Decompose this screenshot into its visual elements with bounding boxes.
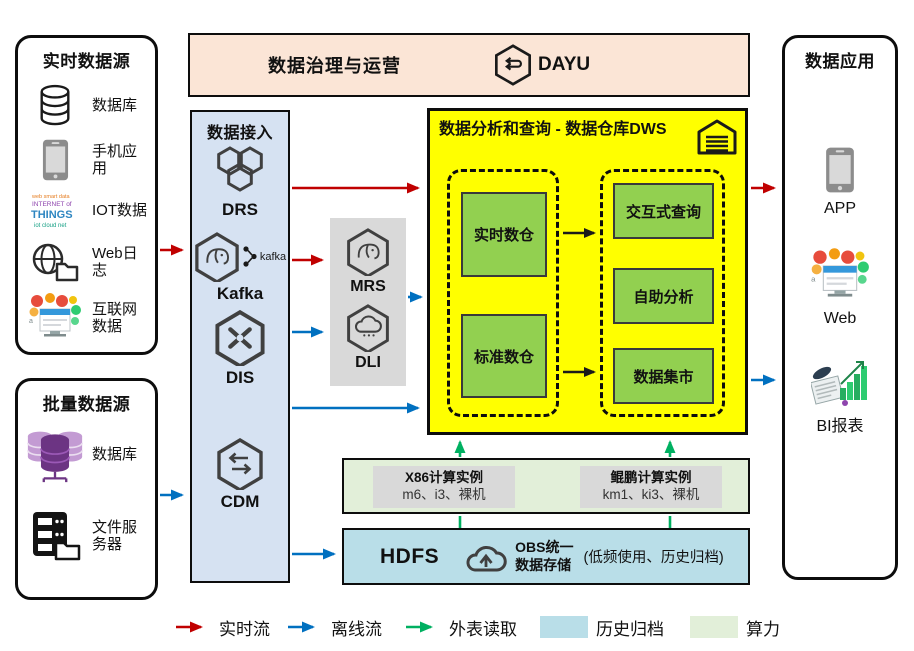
kafka-logo-text: kafka (260, 251, 286, 263)
iot-icon: web smart data INTERNET of THINGS iot cl… (26, 190, 84, 232)
batch-sources-box: 批量数据源 数据库 (15, 378, 158, 600)
source-label: 数据库 (92, 446, 137, 463)
legend-offline-arrow (287, 620, 323, 634)
kunpeng-instance-title: 鲲鹏计算实例 (611, 470, 692, 487)
storage-note: (低频使用、历史归档) (584, 546, 724, 567)
obs-label-line1: OBS统一 (515, 539, 573, 557)
governance-title: 数据治理与运营 (268, 52, 401, 78)
source-row-file-server: 文件服务器 (26, 501, 149, 571)
dayu-icon (493, 43, 533, 87)
ingestion-column: 数据接入 DRS (190, 110, 290, 583)
batch-sources-title: 批量数据源 (18, 390, 155, 415)
dayu-label: DAYU (538, 54, 590, 76)
x86-instance-specs: m6、i3、裸机 (402, 487, 485, 504)
web-icon: a (810, 248, 870, 304)
svg-text:a: a (29, 318, 33, 325)
internet-icon: a (26, 293, 84, 343)
compute-box: X86计算实例 m6、i3、裸机 鲲鹏计算实例 km1、ki3、裸机 (342, 458, 750, 514)
service-cdm: CDM (192, 438, 288, 512)
weblog-icon (26, 241, 84, 283)
dis-icon (213, 310, 267, 366)
legend-label: 离线流 (331, 615, 382, 640)
dli-icon (345, 304, 391, 352)
mrs-icon (345, 228, 391, 276)
legend-label: 历史归档 (596, 615, 664, 640)
svg-text:INTERNET of: INTERNET of (32, 201, 72, 208)
bi-icon (811, 358, 869, 406)
app-item-app: APP (785, 146, 895, 218)
legend-compute-swatch (690, 616, 738, 638)
source-label: 手机应用 (92, 143, 149, 178)
drs-label: DRS (222, 200, 258, 220)
app-label: APP (824, 200, 856, 218)
service-dis: DIS (192, 310, 288, 388)
warehouse-group: 实时数仓 标准数仓 (447, 169, 559, 417)
source-label: 数据库 (92, 97, 137, 114)
legend-realtime-arrow (175, 620, 211, 634)
x86-instance-title: X86计算实例 (405, 470, 483, 487)
realtime-sources-box: 实时数据源 数据库 手机应用 (15, 35, 158, 355)
dws-box: 数据分析和查询 - 数据仓库DWS 实时数仓 标准数仓 交互式查询 自助分析 数… (427, 108, 748, 435)
drs-icon (213, 144, 267, 198)
source-row-internet: a 互联网数据 (26, 290, 149, 346)
legend-external-arrow (405, 620, 441, 634)
svg-text:web smart data: web smart data (31, 194, 71, 200)
legend-archive: 历史归档 (540, 613, 664, 641)
legend-label: 外表读取 (449, 615, 517, 640)
ingestion-title: 数据接入 (192, 119, 288, 143)
source-row-batch-database: 数据库 (26, 419, 149, 491)
applications-title: 数据应用 (785, 47, 895, 72)
interactive-query-cell: 交互式查询 (613, 183, 714, 239)
x86-instance: X86计算实例 m6、i3、裸机 (373, 466, 515, 508)
legend-label: 算力 (746, 615, 780, 640)
dli-label: DLI (355, 354, 381, 372)
obs-label: OBS统一 数据存储 (515, 539, 573, 574)
web-label: Web (824, 310, 857, 328)
kafka-icon: kafka (194, 232, 286, 282)
source-row-iot: web smart data INTERNET of THINGS iot cl… (26, 188, 149, 234)
legend-archive-swatch (540, 616, 588, 638)
source-row-weblog: Web日志 (26, 238, 149, 286)
svg-text:iot cloud net: iot cloud net (34, 223, 67, 229)
kafka-logo-mark (242, 244, 258, 270)
self-service-analysis-cell: 自助分析 (613, 268, 714, 324)
legend-offline-flow: 离线流 (287, 613, 382, 641)
svg-text:a: a (811, 275, 816, 284)
app-item-web: a Web (785, 248, 895, 328)
service-kafka: kafka Kafka (192, 232, 288, 304)
dws-title: 数据分析和查询 - 数据仓库DWS (439, 120, 704, 139)
dayu-group: DAYU (493, 43, 590, 87)
service-dli: DLI (330, 304, 406, 372)
obs-label-line2: 数据存储 (515, 557, 573, 575)
kafka-label: Kafka (217, 284, 263, 304)
source-label: Web日志 (92, 245, 149, 280)
mrs-label: MRS (350, 278, 386, 296)
cdm-label: CDM (221, 492, 260, 512)
database-cluster-icon (26, 423, 84, 487)
database-icon (26, 83, 84, 129)
dis-label: DIS (226, 368, 254, 388)
standard-warehouse-cell: 标准数仓 (461, 314, 547, 398)
legend-realtime-flow: 实时流 (175, 613, 270, 641)
source-label: 互联网数据 (92, 301, 148, 336)
storage-box: HDFS OBS统一 数据存储 (低频使用、历史归档) (342, 528, 750, 585)
legend-label: 实时流 (219, 615, 270, 640)
obs-cloud-icon (463, 538, 509, 576)
legend-external-read: 外表读取 (405, 613, 517, 641)
architecture-diagram: 实时数据源 数据库 手机应用 (0, 0, 914, 651)
hdfs-label: HDFS (380, 545, 439, 569)
source-label: 文件服务器 (92, 519, 148, 554)
cdm-icon (215, 438, 265, 490)
realtime-sources-title: 实时数据源 (18, 47, 155, 72)
mobile-icon (26, 138, 84, 182)
realtime-warehouse-cell: 实时数仓 (461, 192, 547, 277)
service-mrs: MRS (330, 228, 406, 296)
legend-compute-power: 算力 (690, 613, 780, 641)
kunpeng-instance: 鲲鹏计算实例 km1、ki3、裸机 (580, 466, 722, 508)
source-row-mobile: 手机应用 (26, 136, 149, 184)
kunpeng-instance-specs: km1、ki3、裸机 (603, 487, 700, 504)
app-item-bi: BI报表 (785, 358, 895, 436)
source-label: IOT数据 (92, 202, 147, 219)
processing-box: MRS DLI (330, 218, 406, 386)
svg-text:THINGS: THINGS (31, 209, 73, 221)
data-mart-cell: 数据集市 (613, 348, 714, 404)
file-server-icon (26, 510, 84, 562)
bi-label: BI报表 (816, 412, 863, 436)
app-icon (824, 146, 856, 194)
analytics-group: 交互式查询 自助分析 数据集市 (600, 169, 725, 417)
governance-bar: 数据治理与运营 DAYU (188, 33, 750, 97)
service-drs: DRS (192, 144, 288, 220)
source-row-database: 数据库 (26, 80, 149, 132)
applications-box: 数据应用 APP a (782, 35, 898, 580)
warehouse-icon (695, 117, 739, 157)
